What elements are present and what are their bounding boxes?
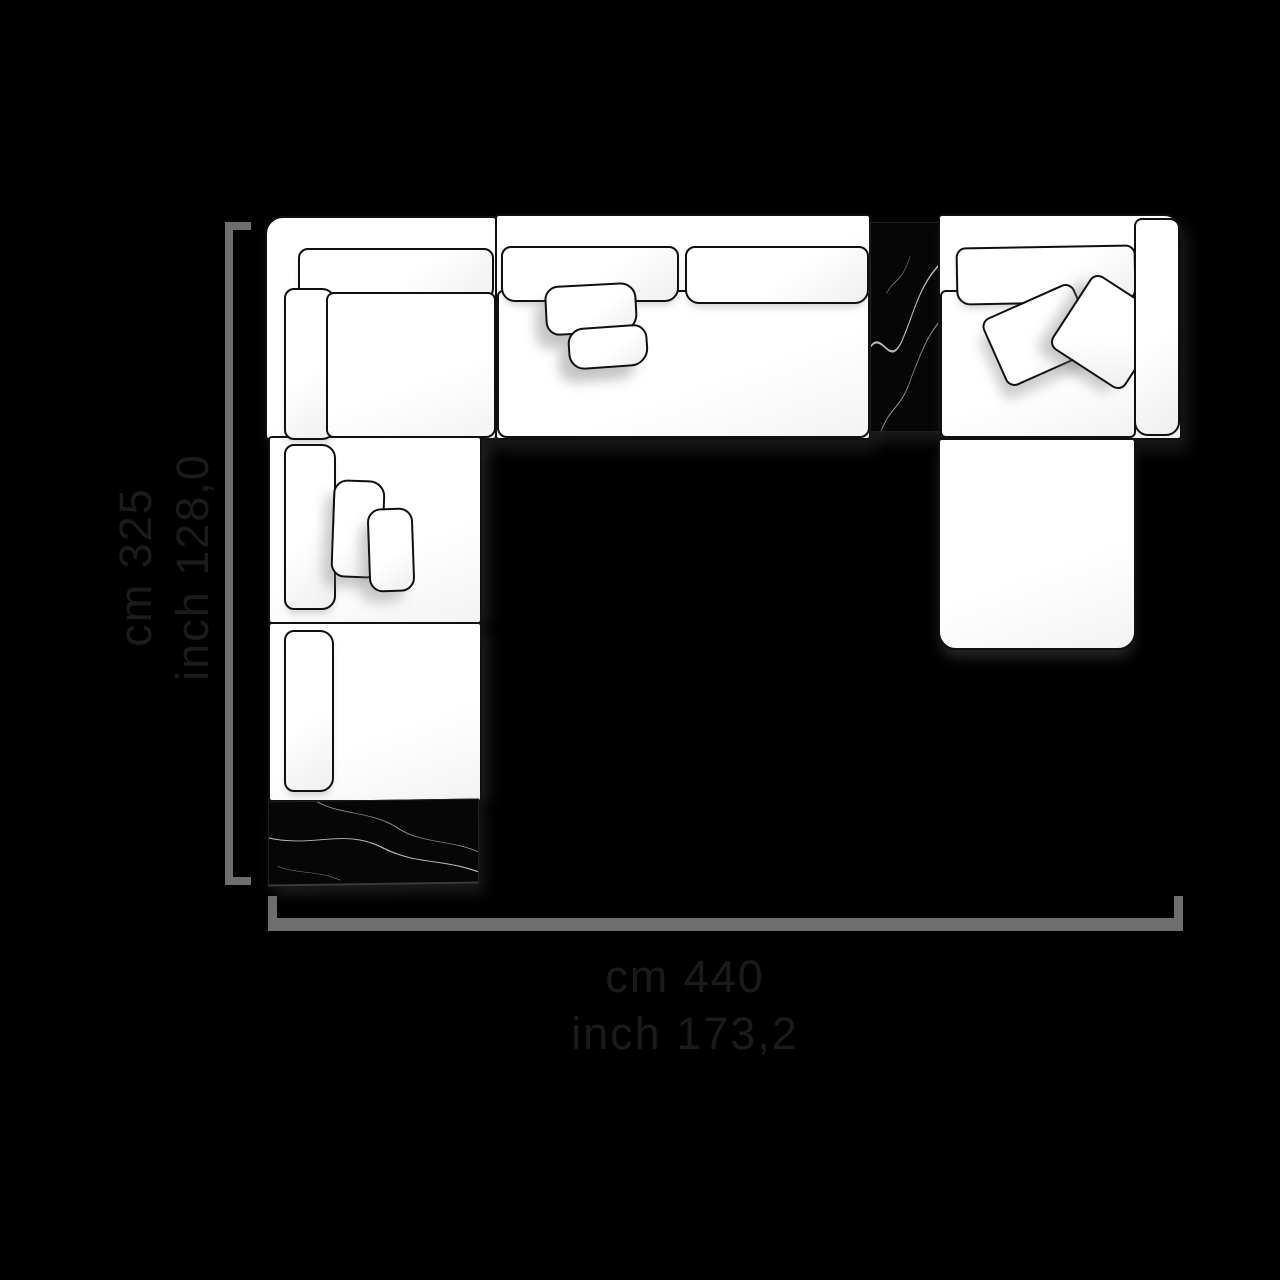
height-dimension-label: cm 325 inch 128,0 <box>14 417 314 717</box>
left-seat-pillow-small <box>367 507 416 593</box>
marble-veining <box>871 223 941 431</box>
height-cm-text: cm 325 <box>107 453 164 681</box>
right-chaise <box>938 438 1136 650</box>
marble-side-table <box>870 222 942 432</box>
corner-seat-cushion <box>326 292 496 438</box>
height-dimension-tick-top <box>225 222 251 230</box>
sofa-dimension-diagram: cm 440 inch 173,2 cm 325 inch 128,0 <box>0 0 1280 1280</box>
width-dimension-label: cm 440 inch 173,2 <box>485 948 885 1062</box>
seat-pouf-small <box>567 323 650 370</box>
width-inch-text: inch 173,2 <box>485 1005 885 1062</box>
marble-veining <box>269 800 478 885</box>
width-cm-text: cm 440 <box>485 948 885 1005</box>
height-label-rotated: cm 325 inch 128,0 <box>107 453 221 681</box>
width-dimension-line <box>268 918 1183 931</box>
right-armrest <box>1134 218 1180 436</box>
width-dimension-tick-left <box>268 896 277 931</box>
height-dimension-tick-bottom <box>225 877 251 885</box>
height-inch-text: inch 128,0 <box>164 453 221 681</box>
width-dimension-tick-right <box>1174 896 1183 931</box>
marble-bench <box>268 799 479 887</box>
middle-back-cushion-right <box>685 246 869 304</box>
